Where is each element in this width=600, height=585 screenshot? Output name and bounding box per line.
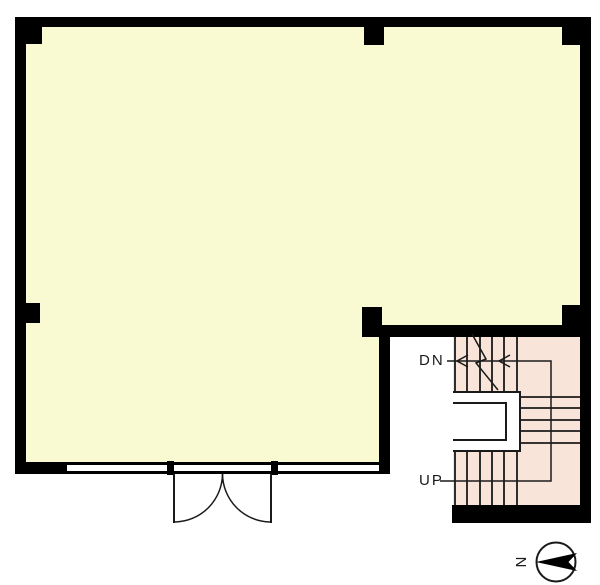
stair-landing-well: [453, 391, 521, 452]
floor-plan: DN UP N: [0, 0, 600, 585]
stair-flight-up-treads: [455, 452, 517, 505]
north-label: N: [512, 553, 528, 571]
compass-north-icon: [536, 543, 577, 582]
up-label: UP: [419, 473, 444, 488]
stair-break-line: [472, 334, 498, 390]
down-label: DN: [419, 353, 445, 368]
door-swing-arc-left: [175, 474, 223, 522]
door-swing-arc-right: [223, 474, 271, 522]
stair-well-white: [453, 391, 521, 452]
stair-flight-down-treads: [455, 337, 517, 391]
plan-linework: [0, 0, 600, 585]
